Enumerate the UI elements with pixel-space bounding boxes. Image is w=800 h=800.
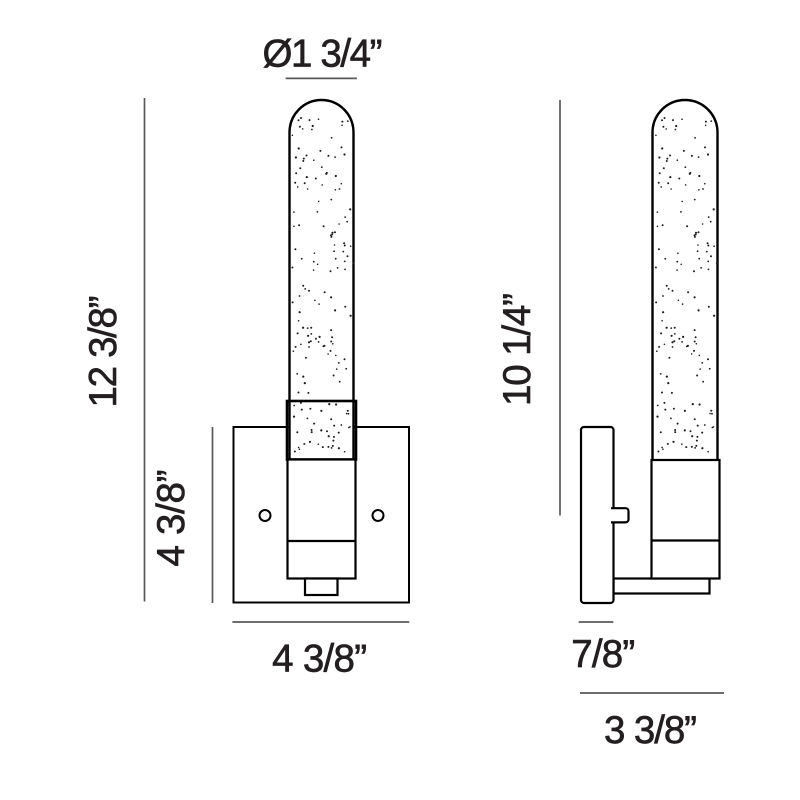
svg-text:10 1/4”: 10 1/4” [496,293,539,406]
svg-text:3 3/8”: 3 3/8” [604,709,697,752]
svg-text:4 3/8”: 4 3/8” [272,638,367,681]
svg-text:7/8”: 7/8” [571,633,635,676]
svg-text:4 3/8”: 4 3/8” [150,470,193,567]
svg-text:Ø1 3/4”: Ø1 3/4” [263,33,383,76]
svg-text:12 3/8”: 12 3/8” [82,296,125,408]
